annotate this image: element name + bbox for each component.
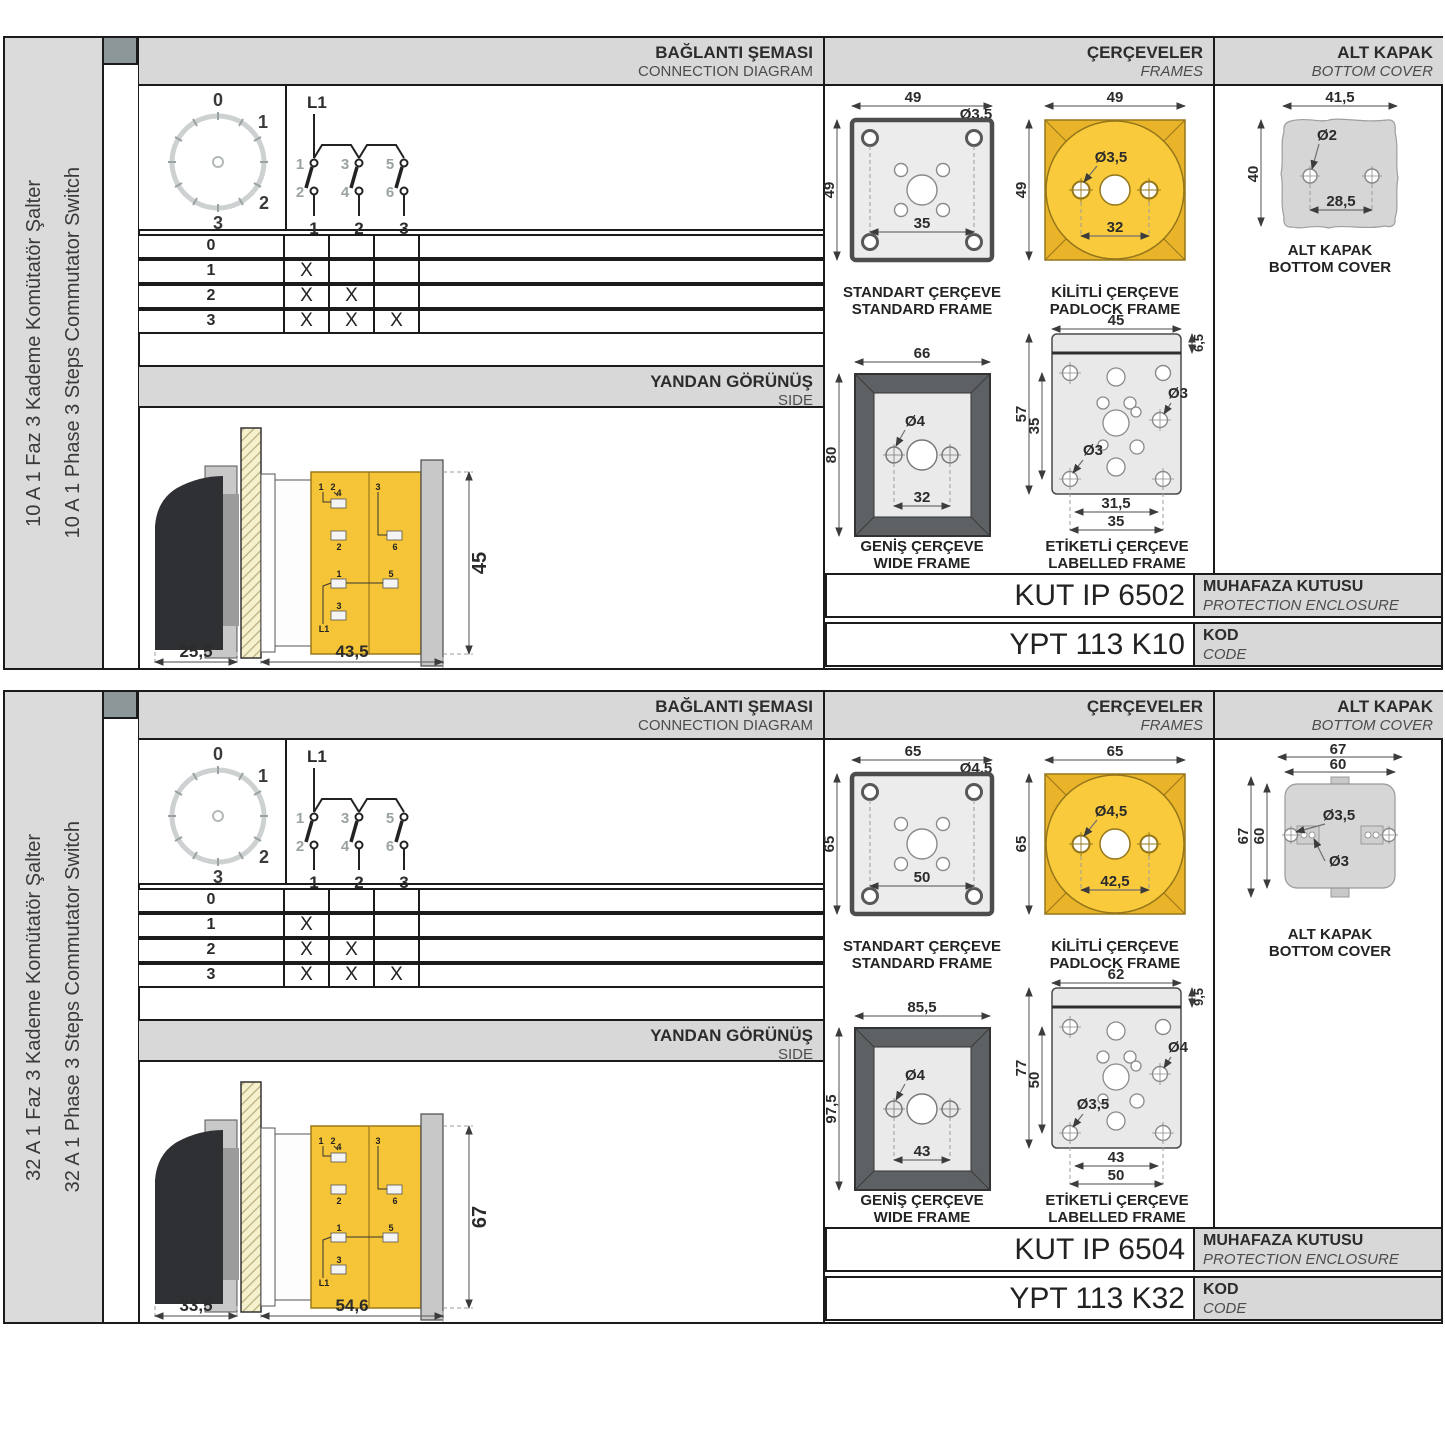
cover-label-tr: ALT KAPAK: [1215, 926, 1445, 943]
truth-table-row: 3 X X X: [139, 309, 823, 334]
mark-cell: [375, 890, 420, 911]
dial-position: 1: [258, 112, 268, 132]
position-cell: 2: [139, 286, 285, 307]
position-cell: 0: [139, 236, 285, 257]
dim-strip: 6,5: [1191, 334, 1206, 352]
header-subtitle: CONNECTION DIAGRAM: [139, 717, 813, 735]
contact-number: 1: [296, 810, 304, 827]
binding-strip: [104, 38, 140, 668]
truth-table-row: 1 X: [139, 913, 823, 938]
dim-width: 62: [1108, 966, 1125, 983]
truth-table-row: 2 X X: [139, 938, 823, 963]
terminal-label: 2: [336, 1196, 341, 1206]
dim-height: 49: [821, 182, 838, 199]
dim-pitch-b2: 35: [1108, 513, 1125, 530]
mark-cell: [375, 286, 420, 307]
dim-hole: Ø3: [1168, 385, 1188, 402]
phase-label: L1: [307, 93, 327, 112]
code-label-tr: MUHAFAZA KUTUSU: [1203, 577, 1441, 597]
product-sheet-10a: 10 A 1 Faz 3 Kademe Komütatör Şalter 10 …: [3, 36, 1443, 670]
dim-height: 65: [1013, 836, 1030, 853]
terminal-label: 1: [336, 1223, 341, 1233]
mark-cell: [285, 236, 330, 257]
truth-table-row: 0: [139, 888, 823, 913]
position-cell: 1: [139, 261, 285, 282]
dim-width: 49: [1107, 89, 1124, 106]
position-cell: 3: [139, 311, 285, 332]
terminal-label: 3: [375, 1136, 380, 1146]
dim-pitch: 50: [914, 869, 931, 886]
header-title: YANDAN GÖRÜNÜŞ: [139, 1025, 813, 1046]
dial-position: 2: [259, 193, 269, 213]
frames-header: ÇERÇEVELER FRAMES: [825, 38, 1213, 86]
frame-label-tr: KİLİTLİ ÇERÇEVE: [1019, 284, 1211, 301]
dim-handle: 25,5: [179, 642, 212, 661]
dim-hole: Ø3,5: [1323, 807, 1356, 824]
frame-label-en: LABELLED FRAME: [1017, 555, 1217, 572]
code-label-en: CODE: [1203, 1300, 1441, 1318]
mark-cell: X: [330, 940, 375, 961]
switch-handle: [155, 1130, 223, 1304]
terminal-label: 1: [318, 1136, 323, 1146]
terminal-label: 2: [330, 1136, 335, 1146]
mark-cell: X: [330, 311, 375, 332]
frame-label-en: WIDE FRAME: [827, 555, 1017, 572]
code-label-en: PROTECTION ENCLOSURE: [1203, 1251, 1441, 1269]
terminal-label: L1: [319, 1278, 330, 1288]
product-code-label: KOD CODE: [1195, 1276, 1441, 1321]
position-cell: 2: [139, 940, 285, 961]
enclosure-code: KUT IP 6502: [825, 573, 1195, 618]
dim-width: 66: [914, 345, 931, 362]
frame-label-en: STANDARD FRAME: [827, 301, 1017, 318]
product-title-english: 10 A 1 Phase 3 Steps Commutator Switch: [62, 167, 85, 538]
dial-position: 0: [213, 90, 223, 110]
cover-label-tr: ALT KAPAK: [1215, 242, 1445, 259]
mark-cell: [330, 890, 375, 911]
dim-hole: Ø3,5: [1095, 149, 1128, 166]
terminal-label: 2: [330, 482, 335, 492]
dim-pitch: 43: [914, 1143, 931, 1160]
wide-frame-label: GENİŞ ÇERÇEVE WIDE FRAME: [827, 538, 1017, 572]
contact-number: 4: [341, 838, 350, 855]
header-title: YANDAN GÖRÜNÜŞ: [139, 371, 813, 392]
wide-frame-drawing: 85,5 Ø4 97,5 43: [827, 1000, 1017, 1192]
binding-strip-tab: [104, 692, 138, 719]
dim-width: 85,5: [907, 999, 936, 1016]
dim-pitch: 28,5: [1326, 193, 1355, 210]
mounting-panel-hatched: [241, 428, 261, 658]
filler-cell: [420, 236, 823, 257]
code-label-en: CODE: [1203, 646, 1441, 664]
mark-cell: X: [285, 311, 330, 332]
dim-width: 41,5: [1325, 89, 1354, 106]
header-title: BAĞLANTI ŞEMASI: [139, 696, 813, 717]
frame-label-tr: GENİŞ ÇERÇEVE: [827, 1192, 1017, 1209]
dim-hole: Ø4: [905, 413, 926, 430]
dial-position: 3: [213, 867, 223, 887]
terminal-label: 1: [336, 569, 341, 579]
bottom-cover-drawing: 67 60 67 60 Ø3,5 Ø3: [1215, 744, 1445, 924]
frame-label-tr: STANDART ÇERÇEVE: [827, 938, 1017, 955]
side-view-drawing: 1 2 4 2 3 6 1 5 3 L1 67 33,5 54,6: [143, 1064, 523, 1322]
terminal-label: 4: [336, 488, 341, 498]
code-label-en: PROTECTION ENCLOSURE: [1203, 597, 1441, 615]
terminal-label: 5: [388, 1223, 393, 1233]
terminal-label: 5: [388, 569, 393, 579]
rotary-dial-diagram: 0 1 2 3: [145, 744, 291, 886]
header-title: ÇERÇEVELER: [825, 42, 1203, 63]
frame-label-tr: STANDART ÇERÇEVE: [827, 284, 1017, 301]
terminal-label: 6: [392, 542, 397, 552]
dim-height: 67: [469, 1206, 491, 1228]
header-subtitle: FRAMES: [825, 63, 1203, 81]
product-title-english: 32 A 1 Phase 3 Steps Commutator Switch: [62, 821, 85, 1192]
bottom-cover-header: ALT KAPAK BOTTOM COVER: [1215, 692, 1443, 740]
dim-height: 45: [469, 552, 491, 574]
dim-pitch: 32: [1107, 219, 1124, 236]
contact-number: 6: [386, 838, 394, 855]
dim-height-inner: 60: [1251, 828, 1268, 845]
side-label-column: 10 A 1 Faz 3 Kademe Komütatör Şalter 10 …: [5, 38, 104, 668]
contact-number: 3: [341, 810, 349, 827]
labelled-frame-drawing: 62 9,5 77 50 Ø4 Ø3,5 43: [1017, 970, 1217, 1192]
dim-hole: Ø4: [1168, 1039, 1189, 1056]
truth-table-row: 1 X: [139, 259, 823, 284]
mark-cell: X: [285, 915, 330, 936]
filler-cell: [420, 286, 823, 307]
header-title: BAĞLANTI ŞEMASI: [139, 42, 813, 63]
product-title-turkish: 32 A 1 Faz 3 Kademe Komütatör Şalter: [23, 834, 46, 1181]
filler-cell: [420, 311, 823, 332]
product-code: YPT 113 K10: [825, 622, 1195, 667]
code-label-tr: MUHAFAZA KUTUSU: [1203, 1231, 1441, 1251]
mark-cell: [330, 261, 375, 282]
dim-hole: Ø3: [1083, 442, 1103, 459]
frame-label-en: WIDE FRAME: [827, 1209, 1017, 1226]
padlock-frame-drawing: 49 Ø3,5 49 32: [1019, 90, 1211, 280]
circuit-diagram: L1 1 3 5 2 4 6 1 2 3: [291, 88, 591, 231]
terminal-label: 6: [392, 1196, 397, 1206]
enclosure-code: KUT IP 6504: [825, 1227, 1195, 1272]
mark-cell: [330, 915, 375, 936]
dim-hole: Ø2: [1317, 127, 1337, 144]
filler-cell: [420, 890, 823, 911]
bottom-cover-header: ALT KAPAK BOTTOM COVER: [1215, 38, 1443, 86]
terminal-label: 2: [336, 542, 341, 552]
binding-strip-tab: [104, 38, 138, 65]
dim-pitch: 32: [914, 489, 931, 506]
contact-number: 1: [296, 156, 304, 173]
mark-cell: X: [330, 286, 375, 307]
header-subtitle: CONNECTION DIAGRAM: [139, 63, 813, 81]
mark-cell: X: [285, 261, 330, 282]
dim-pitch: 35: [914, 215, 931, 232]
dim-pitch-b2: 50: [1108, 1167, 1125, 1184]
cover-label-en: BOTTOM COVER: [1215, 259, 1445, 276]
frame-label-tr: KİLİTLİ ÇERÇEVE: [1019, 938, 1211, 955]
enclosure-code-label: MUHAFAZA KUTUSU PROTECTION ENCLOSURE: [1195, 1227, 1441, 1272]
position-cell: 0: [139, 890, 285, 911]
dim-width: 45: [1108, 312, 1125, 329]
dim-body: 54,6: [335, 1296, 368, 1315]
switch-handle: [155, 476, 223, 650]
filler-cell: [420, 261, 823, 282]
header-title: ALT KAPAK: [1215, 696, 1433, 717]
frame-label-tr: ETİKETLİ ÇERÇEVE: [1017, 1192, 1217, 1209]
bottom-cover-label: ALT KAPAK BOTTOM COVER: [1215, 926, 1445, 960]
dim-height-outer: 67: [1235, 828, 1252, 845]
mark-cell: [330, 236, 375, 257]
wide-frame-drawing: 66 Ø4 80 32: [827, 346, 1017, 538]
product-title-turkish: 10 A 1 Faz 3 Kademe Komütatör Şalter: [23, 180, 46, 527]
dial-position: 3: [213, 213, 223, 233]
dial-position: 1: [258, 766, 268, 786]
frame-label-tr: GENİŞ ÇERÇEVE: [827, 538, 1017, 555]
standard-frame-drawing: 49 Ø3,5 49 35: [827, 90, 1017, 280]
terminal-label: L1: [319, 624, 330, 634]
cover-label-en: BOTTOM COVER: [1215, 943, 1445, 960]
dim-pitch-b1: 31,5: [1101, 495, 1130, 512]
labelled-frame-label: ETİKETLİ ÇERÇEVE LABELLED FRAME: [1017, 538, 1217, 572]
header-title: ÇERÇEVELER: [825, 696, 1203, 717]
product-code-label: KOD CODE: [1195, 622, 1441, 667]
code-label-tr: KOD: [1203, 1280, 1441, 1300]
contact-number: 5: [386, 156, 394, 173]
labelled-frame-drawing: 45 6,5 57 35 Ø3 Ø3 31,5: [1017, 316, 1217, 538]
contact-number: 2: [296, 838, 304, 855]
mark-cell: X: [375, 965, 420, 986]
mark-cell: [375, 236, 420, 257]
header-subtitle: SIDE: [139, 392, 813, 410]
standard-frame-drawing: 65 Ø4,5 65 50: [827, 744, 1017, 934]
dim-height: 49: [1013, 182, 1030, 199]
bottom-cover-drawing: 41,5 Ø2 40 28,5: [1215, 90, 1445, 238]
truth-table-row: 0: [139, 234, 823, 259]
product-code: YPT 113 K32: [825, 1276, 1195, 1321]
frame-label-tr: ETİKETLİ ÇERÇEVE: [1017, 538, 1217, 555]
side-view-header: YANDAN GÖRÜNÜŞ SIDE: [139, 365, 823, 408]
mark-cell: X: [285, 965, 330, 986]
dim-hole: Ø4,5: [1095, 803, 1128, 820]
header-subtitle: BOTTOM COVER: [1215, 63, 1433, 81]
phase-label: L1: [307, 747, 327, 766]
dim-hole: Ø3: [1329, 853, 1349, 870]
frame-label-en: LABELLED FRAME: [1017, 1209, 1217, 1226]
wide-frame-label: GENİŞ ÇERÇEVE WIDE FRAME: [827, 1192, 1017, 1226]
mark-cell: X: [285, 940, 330, 961]
side-label-column: 32 A 1 Faz 3 Kademe Komütatör Şalter 32 …: [5, 692, 104, 1322]
rotary-dial-diagram: 0 1 2 3: [145, 90, 291, 232]
labelled-frame-label: ETİKETLİ ÇERÇEVE LABELLED FRAME: [1017, 1192, 1217, 1226]
contact-number: 6: [386, 184, 394, 201]
dim-width: 49: [905, 89, 922, 106]
header-subtitle: SIDE: [139, 1046, 813, 1064]
terminal-label: 3: [336, 601, 341, 611]
contact-number: 2: [296, 184, 304, 201]
filler-cell: [420, 940, 823, 961]
mark-cell: X: [330, 965, 375, 986]
truth-table-row: 3 X X X: [139, 963, 823, 988]
mark-cell: X: [375, 311, 420, 332]
dim-width: 65: [1107, 743, 1124, 760]
connection-diagram-header: BAĞLANTI ŞEMASI CONNECTION DIAGRAM: [139, 692, 823, 740]
filler-cell: [420, 965, 823, 986]
dim-pitch-vertical: 35: [1026, 418, 1043, 435]
side-view-header: YANDAN GÖRÜNÜŞ SIDE: [139, 1019, 823, 1062]
dim-pitch-vertical: 50: [1026, 1072, 1043, 1089]
mark-cell: [375, 940, 420, 961]
dim-width: 65: [905, 743, 922, 760]
dim-height: 97,5: [823, 1094, 840, 1123]
dim-width-inner: 60: [1330, 756, 1347, 773]
dim-strip: 9,5: [1191, 988, 1206, 1006]
side-view-drawing: 1 2 4 2 3 6 1 5 3 L1 45 25,5 43,5: [143, 410, 523, 668]
position-cell: 3: [139, 965, 285, 986]
dim-handle: 33,5: [179, 1296, 212, 1315]
header-subtitle: BOTTOM COVER: [1215, 717, 1433, 735]
dim-pitch-b1: 43: [1108, 1149, 1125, 1166]
standard-frame-label: STANDART ÇERÇEVE STANDARD FRAME: [827, 938, 1017, 972]
frames-header: ÇERÇEVELER FRAMES: [825, 692, 1213, 740]
bottom-cover-label: ALT KAPAK BOTTOM COVER: [1215, 242, 1445, 276]
code-label-tr: KOD: [1203, 626, 1441, 646]
contact-number: 4: [341, 184, 350, 201]
dim-hole: Ø4: [905, 1067, 926, 1084]
mark-cell: [375, 915, 420, 936]
filler-cell: [420, 915, 823, 936]
mark-cell: [285, 890, 330, 911]
header-title: ALT KAPAK: [1215, 42, 1433, 63]
circuit-diagram: L1 1 3 5 2 4 6 1 2 3: [291, 742, 591, 885]
dim-height: 80: [823, 447, 840, 464]
enclosure-code-label: MUHAFAZA KUTUSU PROTECTION ENCLOSURE: [1195, 573, 1441, 618]
position-cell: 1: [139, 915, 285, 936]
header-subtitle: FRAMES: [825, 717, 1203, 735]
connection-diagram-header: BAĞLANTI ŞEMASI CONNECTION DIAGRAM: [139, 38, 823, 86]
padlock-frame-drawing: 65 Ø4,5 65 42,5: [1019, 744, 1211, 934]
mounting-panel-hatched: [241, 1082, 261, 1312]
dim-height: 65: [821, 836, 838, 853]
dim-body: 43,5: [335, 642, 368, 661]
terminal-label: 3: [336, 1255, 341, 1265]
dim-height: 40: [1245, 166, 1262, 183]
mark-cell: [375, 261, 420, 282]
product-sheet-32a: 32 A 1 Faz 3 Kademe Komütatör Şalter 32 …: [3, 690, 1443, 1324]
terminal-label: 4: [336, 1142, 341, 1152]
terminal-label: 3: [375, 482, 380, 492]
contact-number: 5: [386, 810, 394, 827]
mark-cell: X: [285, 286, 330, 307]
terminal-label: 1: [318, 482, 323, 492]
standard-frame-label: STANDART ÇERÇEVE STANDARD FRAME: [827, 284, 1017, 318]
dial-position: 2: [259, 847, 269, 867]
truth-table-row: 2 X X: [139, 284, 823, 309]
frame-label-en: STANDARD FRAME: [827, 955, 1017, 972]
dim-pitch: 42,5: [1100, 873, 1129, 890]
dim-hole: Ø3,5: [1077, 1096, 1110, 1113]
dial-position: 0: [213, 744, 223, 764]
binding-strip: [104, 692, 140, 1322]
contact-number: 3: [341, 156, 349, 173]
